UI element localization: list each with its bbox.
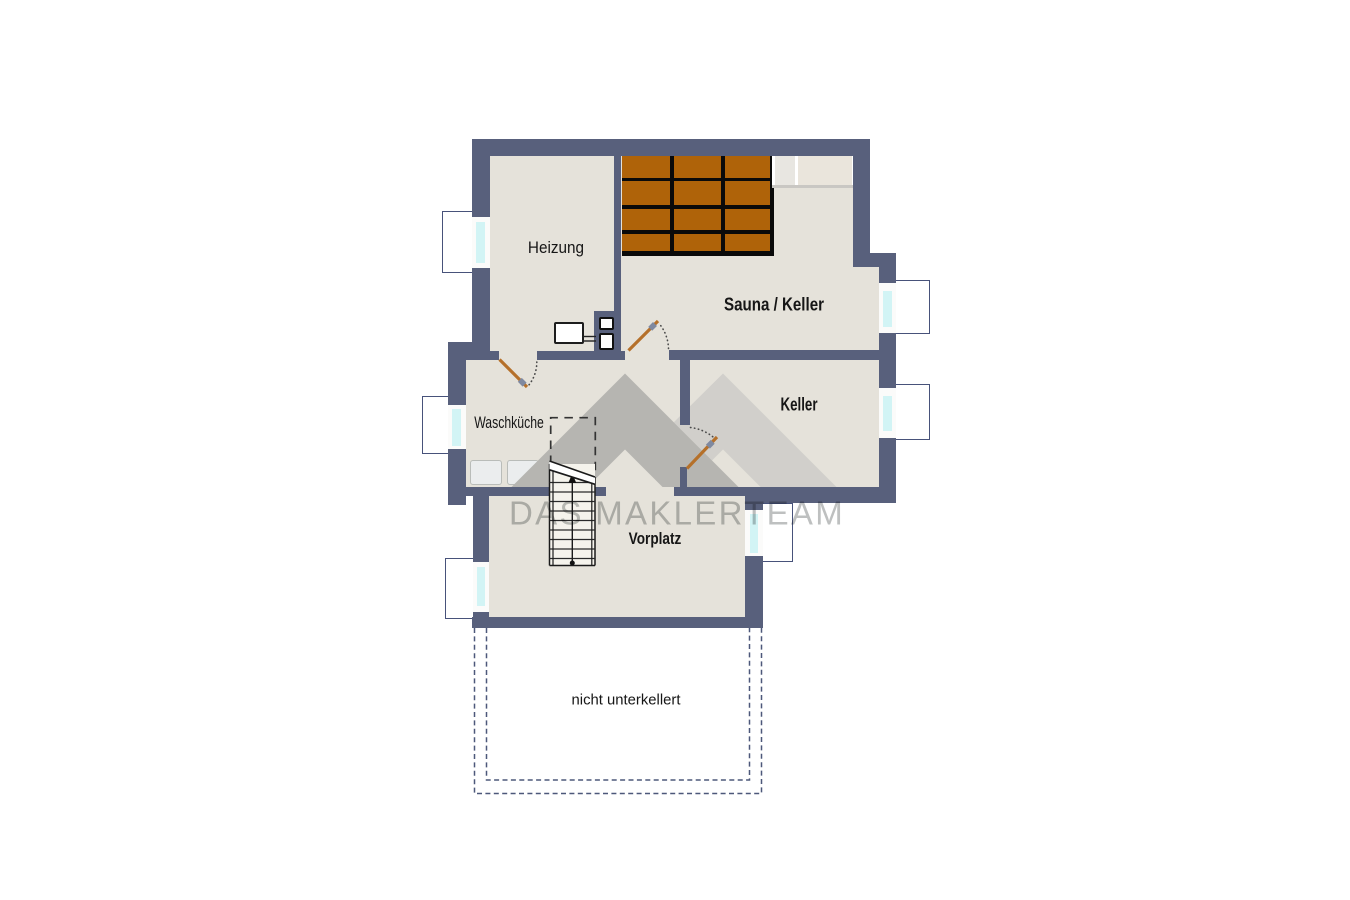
svg-text:DAS MAKLERTEAM: DAS MAKLERTEAM <box>509 494 845 531</box>
